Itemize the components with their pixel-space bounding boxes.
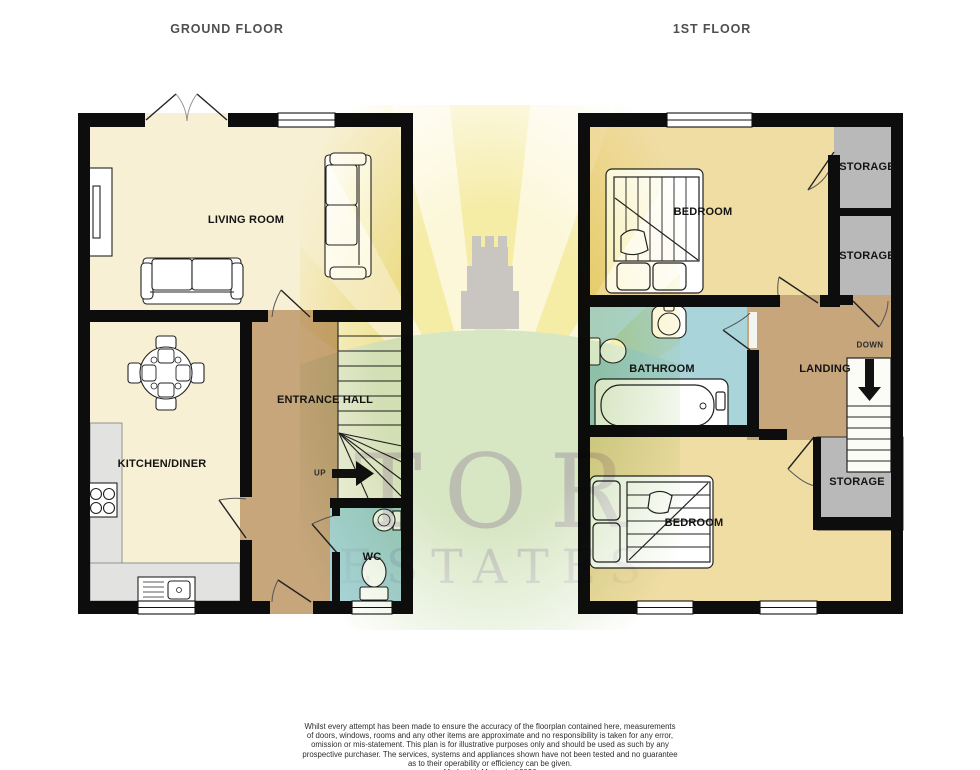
living-room-window-icon: [278, 113, 335, 127]
bed2-icon: [590, 476, 713, 568]
disclaimer-line: as to their operability or efficiency ca…: [0, 759, 980, 768]
bed1-icon: [606, 169, 703, 293]
bath-icon: [595, 379, 728, 432]
sofa-vertical-icon: [325, 153, 371, 279]
floorplan-canvas: TOR ESTATES GROUND FLOOR 1ST FLOOR LIVIN…: [0, 0, 980, 770]
sofa-icon: [141, 258, 243, 304]
bedroom2-window2-icon: [760, 601, 817, 614]
bathroom-toilet-icon: [589, 338, 626, 365]
disclaimer-line: prospective purchaser. The services, sys…: [0, 750, 980, 759]
stove-icon: [87, 483, 117, 517]
tv-unit-icon: [88, 168, 112, 256]
wc-window-icon: [352, 601, 392, 614]
bedroom1-window-icon: [667, 113, 752, 127]
disclaimer-line: of doors, windows, rooms and any other i…: [0, 731, 980, 740]
kitchen-window-icon: [138, 601, 195, 614]
bathroom-basin-icon: [652, 304, 686, 338]
disclaimer: Whilst every attempt has been made to en…: [0, 722, 980, 770]
floorplan-drawing: [0, 0, 980, 770]
disclaimer-line: Whilst every attempt has been made to en…: [0, 722, 980, 731]
disclaimer-line: omission or mis-statement. This plan is …: [0, 740, 980, 749]
wc-basin-icon: [373, 509, 401, 531]
bedroom2-window1-icon: [637, 601, 693, 614]
bathroom-door-gap: [749, 312, 757, 348]
wc-toilet-icon: [360, 557, 388, 600]
entrance-hall-floor: [240, 310, 338, 614]
kitchen-sink-icon: [138, 577, 195, 603]
